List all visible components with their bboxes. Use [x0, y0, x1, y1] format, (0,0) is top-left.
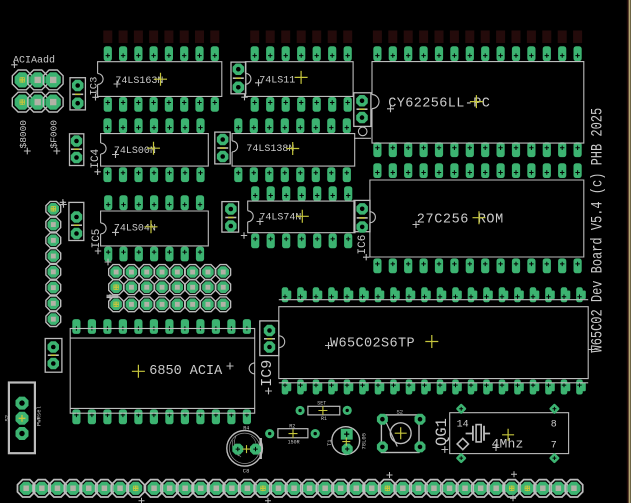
svg-text:W65C02S6TP: W65C02S6TP	[330, 336, 415, 351]
svg-text:74LS04N: 74LS04N	[114, 224, 156, 235]
svg-text:7: 7	[551, 441, 557, 452]
svg-text:CY62256LL-PC: CY62256LL-PC	[388, 96, 490, 111]
svg-text:S2: S2	[3, 415, 10, 422]
svg-text:$8000: $8000	[18, 120, 29, 149]
svg-text:74LS74N: 74LS74N	[259, 213, 301, 224]
svg-text:IC5: IC5	[91, 229, 103, 249]
svg-text:S2: S2	[397, 409, 404, 416]
svg-text:T1: T1	[326, 439, 333, 446]
svg-text:6850 ACIA: 6850 ACIA	[149, 364, 223, 379]
svg-text:QG1: QG1	[433, 418, 451, 446]
svg-text:SET: SET	[317, 401, 326, 407]
svg-text:8: 8	[551, 419, 557, 430]
svg-text:78L05: 78L05	[361, 433, 368, 450]
svg-text:150R: 150R	[288, 440, 300, 446]
svg-text:74LS138N: 74LS138N	[246, 144, 294, 155]
svg-text:IC4: IC4	[90, 148, 102, 168]
svg-text:W65C02 Dev Board V5.4 (c) PHB: W65C02 Dev Board V5.4 (c) PHB 2025	[589, 108, 607, 353]
svg-text:C8: C8	[243, 468, 250, 475]
svg-text:ACIAadd: ACIAadd	[13, 55, 55, 67]
svg-text:R2: R2	[289, 424, 295, 430]
svg-text:74LS11: 74LS11	[259, 75, 295, 86]
svg-text:R1: R1	[321, 416, 327, 422]
svg-text:14: 14	[457, 419, 469, 430]
svg-text:74LS163N: 74LS163N	[115, 76, 163, 87]
svg-text:IC6: IC6	[357, 235, 369, 255]
svg-text:IC9: IC9	[259, 360, 276, 387]
svg-text:IC3: IC3	[88, 77, 100, 96]
svg-text:$F000: $F000	[48, 120, 59, 149]
svg-text:R4: R4	[243, 425, 249, 431]
svg-text:PWRsel: PWRsel	[35, 406, 42, 426]
svg-text:27C256 ROM: 27C256 ROM	[417, 213, 504, 228]
